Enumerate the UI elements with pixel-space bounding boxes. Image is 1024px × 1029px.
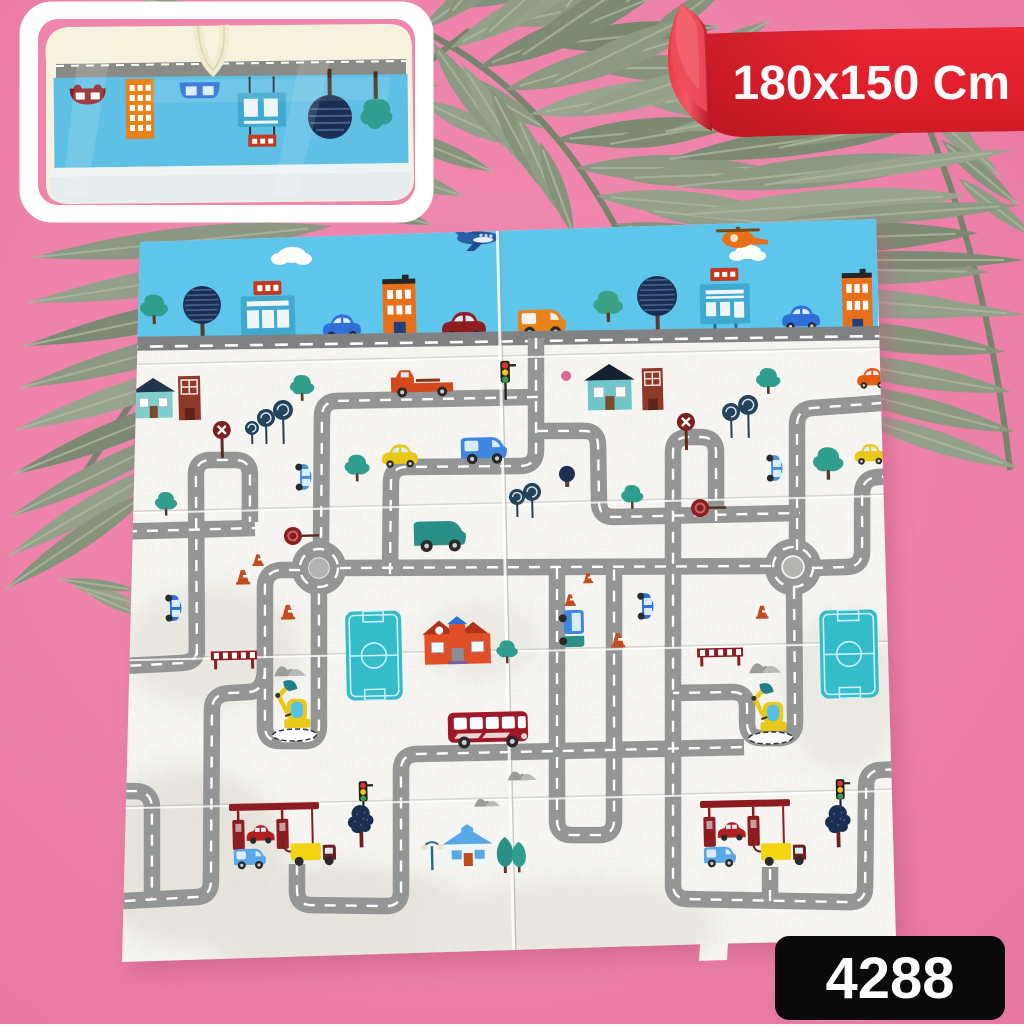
svg-text:180x150 Cm: 180x150 Cm <box>732 57 1010 110</box>
svg-text:4288: 4288 <box>825 946 954 1011</box>
